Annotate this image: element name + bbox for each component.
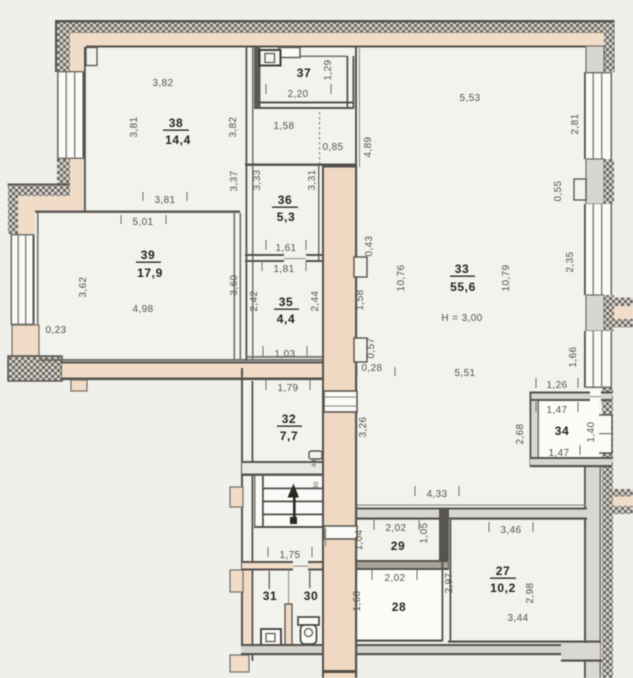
svg-text:1,81: 1,81 [273,264,294,275]
svg-text:5,01: 5,01 [132,217,153,228]
svg-text:3,81: 3,81 [129,116,140,137]
svg-text:33: 33 [455,262,470,276]
svg-text:5,51: 5,51 [454,368,475,379]
svg-text:28: 28 [392,600,407,614]
svg-text:40: 40 [311,459,318,467]
svg-text:1,75: 1,75 [279,550,300,561]
svg-text:4,98: 4,98 [132,304,153,315]
svg-text:2,02: 2,02 [384,573,405,584]
svg-text:2,97: 2,97 [444,572,455,593]
svg-text:4,33: 4,33 [426,489,447,500]
svg-text:0,57: 0,57 [366,337,377,358]
svg-text:3,37: 3,37 [229,170,240,191]
svg-text:1,04: 1,04 [354,529,365,550]
svg-text:1,47: 1,47 [548,448,569,459]
svg-text:3,60: 3,60 [229,274,240,295]
svg-text:1,58: 1,58 [355,289,366,310]
svg-text:1,47: 1,47 [546,405,567,416]
svg-text:5,3: 5,3 [277,210,295,224]
svg-text:10,76: 10,76 [396,264,407,291]
svg-text:1,05: 1,05 [419,522,430,543]
svg-text:14,4: 14,4 [165,133,191,147]
svg-text:27: 27 [496,564,511,578]
svg-text:38: 38 [169,116,184,130]
svg-text:H = 3,00: H = 3,00 [441,313,482,324]
svg-text:55,6: 55,6 [450,280,476,294]
svg-text:3,82: 3,82 [152,78,173,89]
svg-text:1,03: 1,03 [274,349,295,360]
svg-text:2,68: 2,68 [515,423,526,444]
svg-text:0,85: 0,85 [322,142,343,153]
svg-text:1,61: 1,61 [275,243,296,254]
svg-text:2,81: 2,81 [570,113,581,134]
svg-text:34: 34 [555,424,570,438]
svg-text:1,60: 1,60 [352,590,363,611]
svg-text:30: 30 [304,589,319,603]
svg-text:3,82: 3,82 [228,116,239,137]
svg-text:2,20: 2,20 [287,89,308,100]
svg-text:5,53: 5,53 [459,93,480,104]
svg-text:31: 31 [263,589,278,603]
svg-text:1,66: 1,66 [568,346,579,367]
svg-text:4,89: 4,89 [363,136,374,157]
svg-text:35: 35 [279,295,294,309]
svg-text:37: 37 [297,66,312,80]
svg-text:0,23: 0,23 [45,325,66,336]
svg-text:36: 36 [278,193,293,207]
svg-text:3,26: 3,26 [358,416,369,437]
svg-text:17,9: 17,9 [137,266,163,280]
svg-text:1,58: 1,58 [273,121,294,132]
svg-text:0,43: 0,43 [364,235,375,256]
svg-text:7,7: 7,7 [280,429,298,443]
svg-text:3,44: 3,44 [507,613,528,624]
svg-text:2,02: 2,02 [385,523,406,534]
svg-text:1,29: 1,29 [323,59,334,80]
svg-text:2,42: 2,42 [249,290,260,311]
svg-text:2,98: 2,98 [525,582,536,603]
svg-text:1,26: 1,26 [546,380,567,391]
svg-text:2,35: 2,35 [565,251,576,272]
svg-text:0,55: 0,55 [553,180,564,201]
svg-text:0,28: 0,28 [361,363,382,374]
svg-text:32: 32 [282,412,297,426]
svg-text:3,33: 3,33 [252,169,263,190]
svg-text:3,81: 3,81 [154,195,175,206]
svg-text:10,2: 10,2 [490,581,516,595]
svg-text:39: 39 [141,248,156,262]
svg-text:10,79: 10,79 [501,264,512,291]
svg-text:3,62: 3,62 [78,276,89,297]
svg-text:2,44: 2,44 [310,290,321,311]
svg-text:40: 40 [313,481,320,489]
svg-text:1,79: 1,79 [277,383,298,394]
svg-text:29: 29 [391,539,406,553]
svg-text:1,40: 1,40 [586,421,597,442]
svg-text:3,46: 3,46 [500,525,521,536]
svg-text:4,4: 4,4 [277,312,295,326]
svg-text:3,31: 3,31 [307,169,318,190]
